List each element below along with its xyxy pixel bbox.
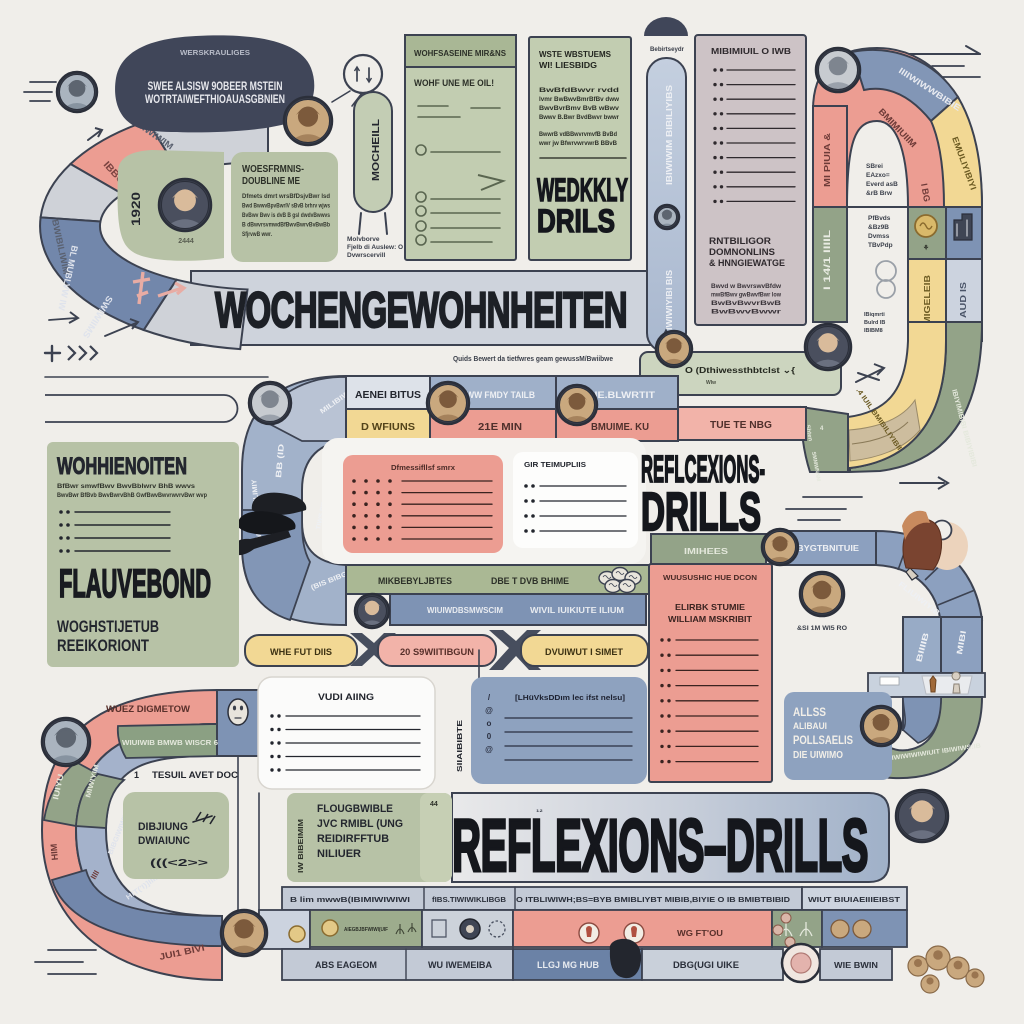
svg-text:WI! LIESBIDG: WI! LIESBIDG [539,60,597,70]
svg-text:MOCHEILL: MOCHEILL [370,118,382,181]
svg-text:BwBfdBwvr rvdd: BwBfdBwvr rvdd [539,88,620,94]
svg-text:mwBfBwv gwBwvfBwr low: mwBfBwv gwBwvfBwr low [711,293,781,299]
svg-text:ALIBAUI: ALIBAUI [793,721,827,731]
svg-text:REFLEXIONS–DRILLS: REFLEXIONS–DRILLS [452,804,868,887]
svg-text:&rB Brw: &rB Brw [866,190,893,197]
svg-text:@: @ [485,745,493,754]
svg-text:(((<2>>: (((<2>> [150,858,208,869]
svg-text:21E MIN: 21E MIN [478,422,522,433]
svg-text:REEIKORIONT: REEIKORIONT [57,636,149,655]
svg-text:AUD IS: AUD IS [958,282,968,318]
svg-text:SWEE ALSISW 9OBEER MSTEIN: SWEE ALSISW 9OBEER MSTEIN [148,81,283,93]
svg-text:MWW FMDY TAILB: MWW FMDY TAILB [459,390,535,401]
svg-text:MI PIUIA &: MI PIUIA & [822,133,832,187]
svg-text:fIBS.TIWIWIKLIBGB: fIBS.TIWIWIKLIBGB [432,897,506,904]
svg-text:WOHFSASEINE MIR&NS: WOHFSASEINE MIR&NS [414,49,507,58]
svg-text:AENEI BITUS: AENEI BITUS [355,389,421,401]
svg-text:WIUIWDBSMWSCIM: WIUIWDBSMWSCIM [427,605,503,615]
svg-text:DBE T DVB BHIME: DBE T DVB BHIME [491,576,569,587]
svg-text:44: 44 [430,801,438,808]
svg-text:JVC RMIBL (UNG: JVC RMIBL (UNG [317,818,403,830]
svg-text:BwvBvrBmv BvB wBwv: BwvBvrBmv BvB wBwv [539,106,620,112]
svg-text:WOHHIENOITEN: WOHHIENOITEN [57,453,187,480]
svg-text:WIUIWIB BMWB WISCR 6: WIUIWIB BMWB WISCR 6 [122,740,218,747]
svg-text:I 14/1 IIIIL: I 14/1 IIIIL [822,229,832,290]
svg-text:MIBIMIUIL O IWB: MIBIMIUIL O IWB [711,47,791,56]
svg-text:IBiqmrti: IBiqmrti [864,312,885,318]
svg-text:WOHF UNE ME OIL!: WOHF UNE ME OIL! [414,78,494,88]
svg-text:SIIAIBIBTE: SIIAIBIBTE [455,720,464,772]
svg-text:⚘: ⚘ [923,244,929,252]
svg-text:DIE UIWIMO: DIE UIWIMO [793,750,843,761]
svg-text:Dvwrscervill: Dvwrscervill [347,252,385,259]
svg-text:DVUIWUT I SIMET: DVUIWUT I SIMET [545,647,623,658]
svg-text:WERSKRAULIGES: WERSKRAULIGES [180,48,250,57]
svg-text:Bebirtseydr: Bebirtseydr [650,47,685,53]
svg-text:WOTRTAIWEFTHIOAUASGBNIEN: WOTRTAIWEFTHIOAUASGBNIEN [145,94,285,106]
svg-text:WIUT BIUIAEIIIEIBST: WIUT BIUIAEIIIEIBST [808,897,901,904]
svg-text:DOUBLINE ME: DOUBLINE ME [242,176,300,187]
svg-text:WHE FUT DIIS: WHE FUT DIIS [270,647,332,658]
svg-text:BfBwr smwfBwv BwvBblwrv BhB ww: BfBwr smwfBwv BwvBblwrv BhB wwvs [57,484,196,490]
svg-text:SBrei: SBrei [866,163,883,170]
svg-text:WILLIAM MSKRIBIT: WILLIAM MSKRIBIT [668,614,753,624]
svg-text:BwBwvBwwr: BwBwvBwwr [711,310,782,316]
svg-text:NILIUER: NILIUER [317,848,361,860]
svg-text:BwwrB vdBBwvrvmvfB BvBd: BwwrB vdBBwvrvmvfB BvBd [539,132,617,138]
svg-text:o: o [487,719,492,728]
svg-text:ELIRBK STUMIE: ELIRBK STUMIE [675,602,745,612]
svg-text:WIVIL IUIKIUTE ILIUM: WIVIL IUIKIUTE ILIUM [530,605,624,615]
svg-text:SfjrvwB wwr.: SfjrvwB wwr. [242,232,272,238]
svg-text:O ITBLIWIWH;BS=BYB BMIBLIYBT M: O ITBLIWIWH;BS=BYB BMIBLIYBT MIBIB,BIYIE… [516,897,790,904]
svg-text:2444: 2444 [178,238,194,245]
svg-text:LLGJ MG HUB: LLGJ MG HUB [537,960,599,970]
svg-text:POLLSAELIS: POLLSAELIS [793,733,853,747]
svg-text:& HNNGIEWATGE: & HNNGIEWATGE [709,258,785,269]
svg-text:&Bz9B: &Bz9B [868,224,889,231]
svg-text:IBIBM8: IBIBM8 [864,328,883,334]
svg-text:Dfmets dmrt wrsBfDsjvBwr lsd: Dfmets dmrt wrsBfDsjvBwr lsd [242,194,330,200]
svg-text:IBIWIWIM BIBILIYIBS: IBIWIWIM BIBILIYIBS [665,84,674,185]
svg-text:WG FT'OU: WG FT'OU [677,928,723,938]
svg-text:BwvBwr BfBvb BwvBwrvBhB GwfBwv: BwvBwr BfBvb BwvBwrvBhB GwfBwvBwvrwvrvBw… [57,493,207,499]
svg-text:Dfmessifllsf smrx: Dfmessifllsf smrx [391,465,455,472]
svg-text:Fjelb di Auslew: O: Fjelb di Auslew: O [347,244,403,251]
svg-text:RNTBILIGOR: RNTBILIGOR [709,236,771,247]
svg-text:IMIHEES: IMIHEES [684,546,728,556]
svg-text:DWIAIUNC: DWIAIUNC [138,835,190,847]
svg-text:IWIWIYIBI BIS: IWIWIYIBI BIS [665,269,674,330]
svg-text:O (Dthiwessthbtclst ⌄{: O (Dthiwessthbtclst ⌄{ [685,365,796,375]
svg-text:FLOUGBWIBLE: FLOUGBWIBLE [317,803,393,815]
svg-text:TUE TE NBG: TUE TE NBG [710,420,772,431]
svg-text:BwBvBwvrBwB: BwBvBwvrBwB [711,301,782,307]
svg-text:PfBvds: PfBvds [868,215,891,222]
svg-text:DRILS: DRILS [537,203,615,239]
svg-text:DOMNONLINS: DOMNONLINS [709,247,775,258]
svg-text:EAzxo=: EAzxo= [866,172,890,179]
svg-text:BYGTBNITUIE: BYGTBNITUIE [797,543,859,553]
svg-text:WOCHENGEWOHNHEITEN: WOCHENGEWOHNHEITEN [215,282,627,338]
svg-text:wwr jw BfwrvwrvwrB BBvB: wwr jw BfwrvwrvwrB BBvB [538,141,618,147]
svg-text:GIR TEIMUPLIIS: GIR TEIMUPLIIS [524,460,586,469]
svg-text:WU IWEMEIBA: WU IWEMEIBA [428,960,492,970]
svg-text:20 S9WIITIBGUN: 20 S9WIITIBGUN [400,647,474,658]
svg-text:TESUIL AVET DOC: TESUIL AVET DOC [152,770,239,780]
svg-text:&SI 1M WI5 RO: &SI 1M WI5 RO [797,625,847,632]
svg-text:ABS EAGEOM: ABS EAGEOM [315,960,377,970]
svg-text:WUUSUSHIC HUE DCON: WUUSUSHIC HUE DCON [663,573,757,582]
svg-text:WUEZ DIGMETOW: WUEZ DIGMETOW [106,704,190,715]
svg-text:B lim mwwB(IBIMIWIWIWI: B lim mwwB(IBIMIWIWIWI [290,897,410,904]
svg-text:MIKBEBYLJBTES: MIKBEBYLJBTES [378,576,452,587]
svg-text:Bwvd w BwvrswvBfdw: Bwvd w BwvrswvBfdw [711,284,781,290]
svg-text:Bwd BwwvBpvBwrlV sBvB brhrv wj: Bwd BwwvBpvBwrlV sBvB brhrv wjws [242,204,331,210]
svg-text:WOESFRMNIS-: WOESFRMNIS- [242,164,304,175]
svg-text:REIDIRFFTUB: REIDIRFFTUB [317,833,389,845]
svg-text:Dvmss: Dvmss [868,233,890,240]
svg-text:VUDI AIING: VUDI AIING [318,692,374,703]
svg-text:0: 0 [487,732,492,741]
svg-text:Quids Bewert da tietfwres geam: Quids Bewert da tietfwres geam gewussM/B… [453,354,613,363]
svg-text:AIEGBJBFWIWI(UIF: AIEGBJBFWIWI(UIF [344,927,389,933]
svg-text:MIGELEIB: MIGELEIB [922,275,932,325]
svg-text:WOGHSTIJETUB: WOGHSTIJETUB [57,617,159,636]
svg-text:1920: 1920 [129,192,143,226]
svg-text:FLAUVEBOND: FLAUVEBOND [59,562,211,606]
svg-text:B dBwvrsvmwdBfBwvBwrvBvBwBb: B dBwvrsvmwdBfBwvBwrvBvBwBb [242,223,330,229]
svg-text:IW BIBEIMIM: IW BIBEIMIM [296,819,305,873]
svg-text:1: 1 [134,770,139,780]
svg-text:Bwwv B.Bwr BvdBwvr bwwr: Bwwv B.Bwr BvdBwvr bwwr [539,115,620,121]
svg-text:TBvPdp: TBvPdp [868,242,893,249]
svg-text:HIM: HIM [49,843,60,860]
svg-text:Everd asB: Everd asB [866,181,898,188]
svg-text:lvmr BwBwvBmrBfBv dww: lvmr BwBwvBmrBfBv dww [539,97,619,103]
svg-text:WIE BWIN: WIE BWIN [834,960,878,970]
svg-text:@: @ [485,706,493,715]
svg-text:BuIrd IB: BuIrd IB [864,320,885,326]
svg-text:ALLSS: ALLSS [793,705,826,719]
svg-text:WIw: WIw [706,380,716,386]
svg-text:BMUIME. KU: BMUIME. KU [591,422,649,433]
svg-text:DIBJIUNG: DIBJIUNG [138,821,188,833]
svg-text:WSTE WBSTUEMS: WSTE WBSTUEMS [539,49,611,59]
svg-text:Molvborve: Molvborve [347,236,380,243]
svg-text:[LHüVksDDım lec ifst nelsu]: [LHüVksDDım lec ifst nelsu] [515,693,626,702]
svg-text:DBG(UGI UIKE: DBG(UGI UIKE [673,960,739,970]
svg-text:BvBwv Bwv is dvB B gsl dwdvBww: BvBwv Bwv is dvB B gsl dwdvBwwvs [242,213,331,219]
svg-text:D WFIUNS: D WFIUNS [361,422,415,433]
